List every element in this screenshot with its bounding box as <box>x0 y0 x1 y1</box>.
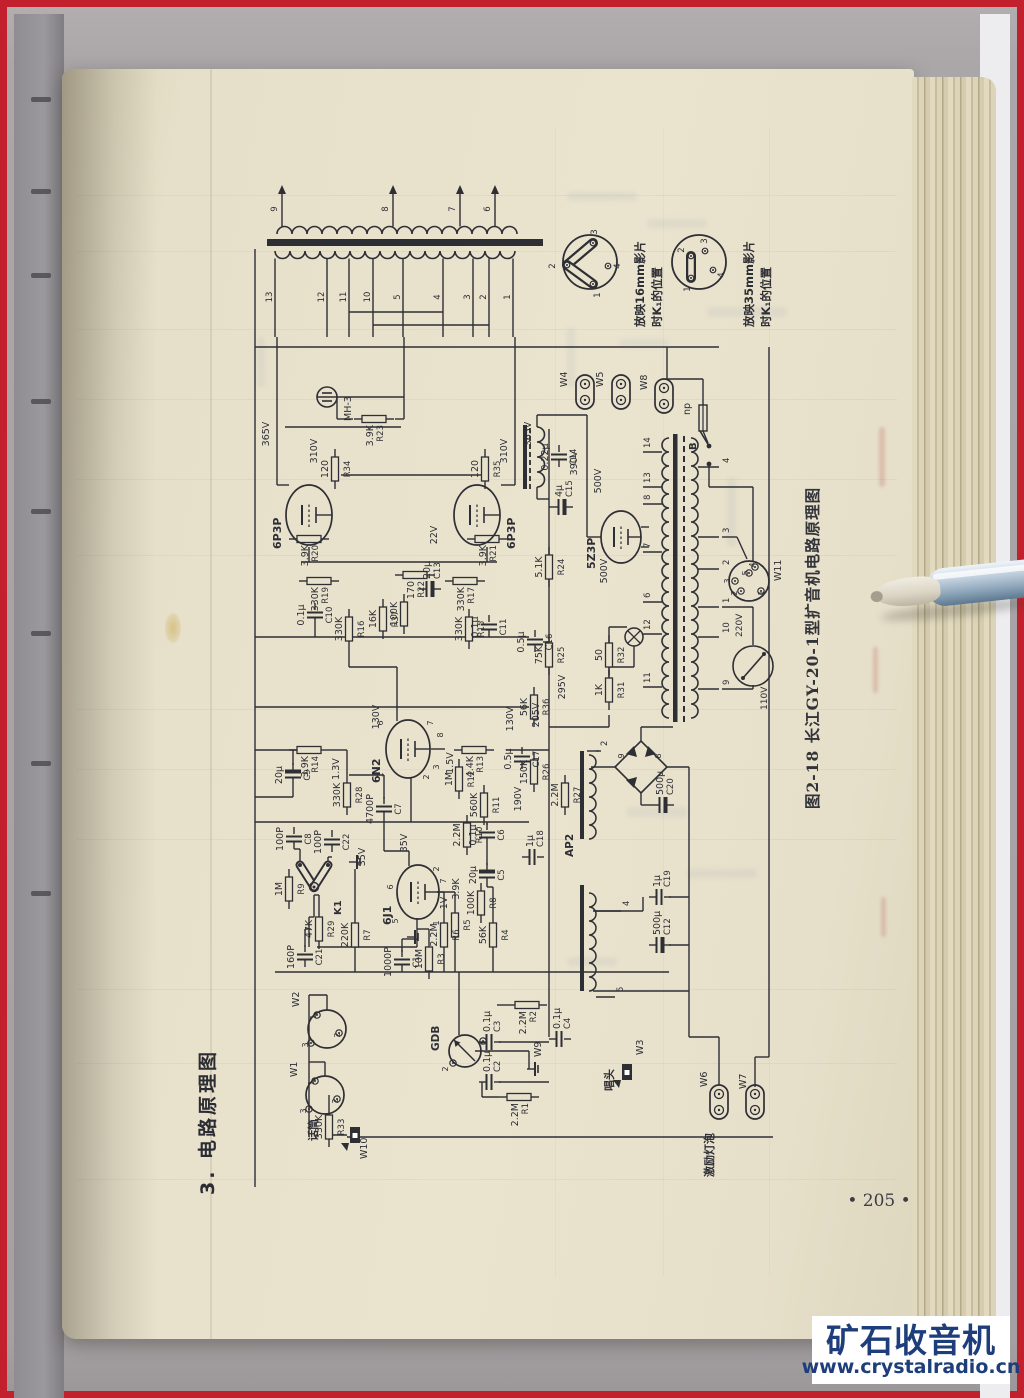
power-transformer: 141387612114321109 <box>643 434 732 722</box>
svg-text:2: 2 <box>600 741 610 746</box>
svg-text:2: 2 <box>422 774 431 779</box>
terminal-oval <box>710 1085 728 1119</box>
svg-text:GDB: GDB <box>430 1026 442 1051</box>
svg-text:2.2M: 2.2M <box>429 923 440 946</box>
svg-text:13: 13 <box>265 292 275 303</box>
svg-text:3.9K: 3.9K <box>365 424 376 446</box>
svg-text:3.9K: 3.9K <box>478 544 489 566</box>
svg-text:7: 7 <box>439 878 448 883</box>
svg-text:4: 4 <box>748 562 757 567</box>
svg-text:2.2M: 2.2M <box>550 783 561 806</box>
svg-text:1: 1 <box>757 590 766 595</box>
svg-text:R7: R7 <box>363 929 373 940</box>
resistor-R32: 50R32 <box>594 635 627 675</box>
capacitor-C21: 160PC21 <box>286 945 325 969</box>
page-edge-mark <box>31 97 51 102</box>
svg-text:3: 3 <box>301 1042 310 1047</box>
svg-text:2.2M: 2.2M <box>518 1011 529 1034</box>
svg-text:7: 7 <box>426 720 435 725</box>
svg-text:5: 5 <box>741 570 750 575</box>
svg-text:R13: R13 <box>476 756 486 773</box>
svg-text:6N2: 6N2 <box>370 758 383 783</box>
tube-6J1: 6J1 <box>381 865 439 925</box>
resistor-R28: 330KR28 <box>332 775 365 815</box>
capacitor-C15: 4μC15 <box>551 480 575 515</box>
svg-text:W10: W10 <box>359 1138 370 1159</box>
svg-text:R34: R34 <box>343 461 353 478</box>
svg-text:7: 7 <box>448 206 458 211</box>
svg-text:C19: C19 <box>663 870 673 887</box>
svg-text:3: 3 <box>722 528 732 533</box>
watermark-url: www.crystalradio.cn <box>802 1358 1021 1377</box>
svg-text:6: 6 <box>386 884 395 889</box>
svg-text:R32: R32 <box>617 647 627 664</box>
svg-text:120: 120 <box>470 460 481 478</box>
svg-text:2: 2 <box>441 1066 450 1071</box>
svg-text:W7: W7 <box>738 1074 749 1089</box>
svg-text:190V: 190V <box>513 786 524 811</box>
svg-text:330K: 330K <box>454 616 465 641</box>
k1-position-diagram: 3214放映16mm影片时K₁的位置 <box>548 229 664 328</box>
capacitor-C11: 0.1μC11 <box>470 615 509 638</box>
svg-text:500V: 500V <box>599 558 610 583</box>
svg-text:8: 8 <box>643 495 653 500</box>
svg-text:0.1μ: 0.1μ <box>482 1051 493 1072</box>
svg-text:7: 7 <box>643 543 653 548</box>
autotransformer-AP2: 245 <box>580 741 632 997</box>
svg-text:20μ: 20μ <box>274 766 285 784</box>
svg-text:0.22μ: 0.22μ <box>540 443 551 470</box>
svg-text:0.1μ: 0.1μ <box>468 824 479 845</box>
section-heading: 3. 电路原理图 <box>193 1035 220 1195</box>
svg-text:W4: W4 <box>559 372 570 387</box>
watermark: 矿石收音机 www.crystalradio.cn <box>812 1316 1010 1384</box>
svg-text:4700P: 4700P <box>365 794 376 824</box>
svg-text:220K: 220K <box>340 922 351 947</box>
svg-text:R1: R1 <box>521 1103 531 1114</box>
page-edge-mark <box>31 189 51 194</box>
svg-text:B: B <box>688 442 699 450</box>
svg-text:12: 12 <box>643 619 653 630</box>
svg-text:330K: 330K <box>332 782 343 807</box>
svg-text:390V: 390V <box>569 450 580 475</box>
photo-red-frame: 2.2MR12.2MR210MR356KR4R52.2MR6220KR7100K… <box>0 0 1024 1398</box>
svg-text:4: 4 <box>622 901 632 906</box>
svg-text:R9: R9 <box>297 883 307 894</box>
voltage-selector <box>733 646 773 686</box>
svg-text:0.1μ: 0.1μ <box>296 604 307 625</box>
svg-text:0.5μ: 0.5μ <box>516 631 527 652</box>
terminal-oval <box>576 375 594 409</box>
svg-text:1: 1 <box>593 292 603 297</box>
svg-text:5: 5 <box>393 294 403 299</box>
svg-text:R21: R21 <box>489 545 499 562</box>
resistor-R16: 330KR16 <box>334 609 367 649</box>
page-edge-mark <box>31 399 51 404</box>
resistor-R11: 560KR11 <box>469 785 502 825</box>
gdb-arrow <box>454 1040 475 1061</box>
svg-text:56K: 56K <box>478 925 489 944</box>
svg-text:R11: R11 <box>492 797 502 814</box>
fore-edge-mark <box>879 427 885 487</box>
svg-text:3.9K: 3.9K <box>300 544 311 566</box>
svg-text:C15: C15 <box>565 480 575 497</box>
svg-text:C11: C11 <box>499 619 509 636</box>
svg-text:4: 4 <box>722 458 732 463</box>
svg-text:9: 9 <box>722 680 732 685</box>
svg-text:1: 1 <box>432 920 441 925</box>
capacitor-C6: 0.1μC6 <box>468 823 507 846</box>
svg-text:0.5μ: 0.5μ <box>503 748 514 769</box>
svg-text:C1: C1 <box>412 956 422 967</box>
svg-text:R16: R16 <box>357 621 367 638</box>
svg-text:1: 1 <box>480 1040 489 1045</box>
book-gutter-shadow <box>62 69 157 1339</box>
resistor-R17: 330KR17 <box>445 578 485 612</box>
page-edge-stack <box>912 77 996 1339</box>
svg-text:2.2M: 2.2M <box>510 1103 521 1126</box>
svg-text:W11: W11 <box>773 560 784 581</box>
svg-text:56K: 56K <box>519 697 530 716</box>
indicator-lamp <box>625 628 643 646</box>
svg-text:330K: 330K <box>456 586 467 611</box>
svg-text:C7: C7 <box>394 803 404 814</box>
k1-position-diagram: 2314放映35mm影片时K₁的位置 <box>672 235 773 328</box>
capacitor-C17: 0.5μC17 <box>503 747 542 770</box>
svg-text:13: 13 <box>643 472 653 483</box>
svg-text:35V: 35V <box>357 847 368 866</box>
svg-text:C4: C4 <box>563 1018 573 1029</box>
svg-text:6P3P: 6P3P <box>505 518 518 549</box>
svg-text:R6: R6 <box>452 929 462 940</box>
svg-text:11: 11 <box>643 672 653 683</box>
svg-text:W2: W2 <box>291 992 302 1007</box>
page-edge-mark <box>31 509 51 514</box>
terminal-oval <box>655 379 673 413</box>
svg-text:2: 2 <box>333 1032 342 1037</box>
svg-text:1: 1 <box>307 1080 316 1085</box>
resistor-R4: 56KR4 <box>478 915 511 955</box>
svg-text:295V: 295V <box>557 674 568 699</box>
svg-text:150K: 150K <box>519 759 530 784</box>
svg-text:2: 2 <box>730 590 739 595</box>
svg-text:3.9K: 3.9K <box>451 878 462 900</box>
svg-text:5Z3P: 5Z3P <box>585 538 598 569</box>
svg-text:16K: 16K <box>368 609 379 628</box>
capacitor-C19: 1μC19 <box>649 870 673 905</box>
svg-text:365V: 365V <box>261 421 272 446</box>
svg-text:3: 3 <box>590 229 600 234</box>
svg-text:11: 11 <box>339 292 349 303</box>
svg-text:话筒: 话筒 <box>306 1119 320 1141</box>
svg-text:W3: W3 <box>635 1040 646 1055</box>
svg-text:MH-3: MH-3 <box>343 396 354 421</box>
svg-text:W5: W5 <box>595 372 606 387</box>
terminal-oval <box>746 1085 764 1119</box>
svg-text:C21: C21 <box>315 949 325 966</box>
svg-text:50: 50 <box>594 649 605 661</box>
fore-edge-mark <box>881 897 886 937</box>
svg-text:1K: 1K <box>594 683 605 696</box>
svg-text:160P: 160P <box>286 945 297 969</box>
svg-text:C3: C3 <box>493 1021 503 1032</box>
svg-text:1: 1 <box>683 286 693 291</box>
svg-text:3: 3 <box>700 238 710 243</box>
svg-text:205V: 205V <box>531 702 542 727</box>
resistor-R2: 2.2MR2 <box>507 1002 547 1035</box>
svg-text:W8: W8 <box>639 375 650 390</box>
svg-text:R37: R37 <box>391 611 401 628</box>
svg-text:C6: C6 <box>497 829 507 840</box>
svg-text:2: 2 <box>432 866 441 871</box>
svg-text:C17: C17 <box>532 751 542 768</box>
svg-text:14: 14 <box>643 437 653 448</box>
svg-text:激励灯泡: 激励灯泡 <box>702 1133 716 1177</box>
capacitor-C16: 0.5μC16 <box>516 630 555 653</box>
svg-text:1.5V: 1.5V <box>445 752 456 774</box>
svg-text:1: 1 <box>376 772 385 777</box>
svg-text:放映35mm影片: 放映35mm影片 <box>742 241 756 328</box>
svg-text:C18: C18 <box>536 830 546 847</box>
svg-text:130V: 130V <box>371 704 382 729</box>
svg-text:R2: R2 <box>529 1011 539 1022</box>
svg-text:1V: 1V <box>439 896 450 909</box>
svg-text:R23: R23 <box>376 425 386 442</box>
circuit-schematic: 2.2MR12.2MR210MR356KR4R52.2MR6220KR7100K… <box>197 177 842 1187</box>
figure-caption: 图2-18 长江GY-20-1型扩音机电路原理图 <box>801 409 823 809</box>
capacitor-C10: 0.1μC10 <box>296 603 335 626</box>
svg-text:10: 10 <box>722 622 732 633</box>
svg-text:6: 6 <box>643 593 653 598</box>
svg-text:R8: R8 <box>489 897 499 908</box>
svg-text:np: np <box>682 403 693 415</box>
svg-text:5: 5 <box>391 918 400 923</box>
svg-text:1M: 1M <box>444 772 455 786</box>
schematic-rotated-layer: 2.2MR12.2MR210MR356KR4R52.2MR6220KR7100K… <box>197 177 842 1187</box>
svg-text:12: 12 <box>317 292 327 303</box>
svg-text:唱头: 唱头 <box>602 1069 616 1091</box>
paper-stain <box>165 613 181 643</box>
svg-text:1μ: 1μ <box>652 875 663 887</box>
fore-edge-mark <box>873 647 878 693</box>
connector-pin <box>732 578 738 584</box>
resistor-R31: 1KR31 <box>594 670 627 710</box>
capacitor-C5: 20μC5 <box>468 863 507 885</box>
svg-text:4.4K: 4.4K <box>465 755 476 777</box>
svg-text:4: 4 <box>613 263 623 268</box>
svg-text:R24: R24 <box>557 559 567 576</box>
capacitor-C8: 100PC8 <box>275 827 314 851</box>
watermark-title: 矿石收音机 <box>826 1324 996 1357</box>
svg-text:8: 8 <box>381 206 391 211</box>
svg-text:C22: C22 <box>342 834 352 851</box>
svg-text:100P: 100P <box>313 830 324 854</box>
svg-text:4μ: 4μ <box>554 485 565 497</box>
pen-tip <box>873 574 942 609</box>
svg-text:5: 5 <box>616 987 626 992</box>
svg-text:9: 9 <box>270 206 280 211</box>
resistor-R1: 2.2MR1 <box>499 1094 539 1127</box>
svg-text:560K: 560K <box>469 792 480 817</box>
svg-text:500μ: 500μ <box>652 911 663 935</box>
svg-text:1: 1 <box>503 294 513 299</box>
svg-text:9: 9 <box>617 753 626 758</box>
svg-text:R5: R5 <box>463 919 473 930</box>
photo-background-left <box>14 14 64 1398</box>
svg-text:C10: C10 <box>325 607 335 624</box>
svg-text:8: 8 <box>654 753 663 758</box>
svg-text:500V: 500V <box>593 468 604 493</box>
resistor-R34: 120R34 <box>320 449 353 489</box>
svg-text:R29: R29 <box>327 921 337 938</box>
capacitor-C20: 500μC20 <box>652 771 676 813</box>
svg-text:10: 10 <box>363 292 373 303</box>
fuse-np <box>699 405 707 431</box>
svg-text:1μ: 1μ <box>525 835 536 847</box>
svg-text:R4: R4 <box>501 929 511 940</box>
svg-text:35V: 35V <box>399 833 410 852</box>
svg-text:W1: W1 <box>289 1062 300 1077</box>
svg-text:110V: 110V <box>760 686 770 710</box>
svg-text:0.1μ: 0.1μ <box>482 1011 493 1032</box>
svg-text:时K₁的位置: 时K₁的位置 <box>650 267 664 327</box>
resistor-R7: 220KR7 <box>340 915 373 955</box>
svg-text:R26: R26 <box>542 764 552 781</box>
svg-text:放映16mm影片: 放映16mm影片 <box>633 241 647 328</box>
svg-text:1.3V: 1.3V <box>331 758 342 780</box>
svg-text:8: 8 <box>436 732 445 737</box>
svg-text:6: 6 <box>483 206 493 211</box>
svg-text:3: 3 <box>299 1108 308 1113</box>
svg-text:R25: R25 <box>557 647 567 664</box>
capacitor-C18: 1μC18 <box>522 830 546 865</box>
resistor-R8: 100KR8 <box>466 883 499 923</box>
svg-text:R3: R3 <box>437 953 447 964</box>
svg-text:R33: R33 <box>337 1119 347 1136</box>
svg-text:1M: 1M <box>274 882 285 896</box>
svg-text:100P: 100P <box>275 827 286 851</box>
svg-text:4: 4 <box>717 272 727 277</box>
svg-text:2: 2 <box>331 1098 340 1103</box>
svg-text:2: 2 <box>722 560 732 565</box>
resistor-R27: 2.2MR27 <box>550 775 583 815</box>
svg-text:170: 170 <box>406 581 417 599</box>
svg-text:3: 3 <box>723 578 732 583</box>
page-edge-mark <box>31 631 51 636</box>
svg-text:310V: 310V <box>309 438 320 463</box>
svg-text:C2: C2 <box>493 1061 503 1072</box>
svg-text:47K: 47K <box>304 919 315 938</box>
svg-text:C13: C13 <box>433 562 443 579</box>
svg-text:C16: C16 <box>545 634 555 651</box>
svg-text:AP2: AP2 <box>564 834 576 857</box>
resistor-R23: 3.9KR23 <box>354 416 394 447</box>
svg-text:6: 6 <box>376 720 385 725</box>
svg-text:3: 3 <box>432 764 441 769</box>
svg-text:0.1μ: 0.1μ <box>552 1008 563 1029</box>
svg-text:2.2M: 2.2M <box>452 823 463 846</box>
capacitor-C22: 100PC22 <box>313 830 352 854</box>
svg-text:R28: R28 <box>355 787 365 804</box>
svg-text:C20: C20 <box>666 778 676 795</box>
pen <box>865 542 1024 647</box>
svg-text:R36: R36 <box>542 699 552 716</box>
svg-text:C9: C9 <box>303 769 313 780</box>
svg-text:R31: R31 <box>617 682 627 699</box>
svg-text:22V: 22V <box>429 525 440 544</box>
svg-text:310V: 310V <box>499 438 510 463</box>
svg-text:4: 4 <box>433 294 443 299</box>
svg-text:6P3P: 6P3P <box>271 518 284 549</box>
svg-text:1: 1 <box>309 1014 318 1019</box>
page-edge-mark <box>31 273 51 278</box>
svg-text:0.1μ: 0.1μ <box>470 616 481 637</box>
capacitor-C12: 500μC12 <box>649 911 673 953</box>
svg-text:20μ: 20μ <box>468 866 479 884</box>
svg-text:5.1K: 5.1K <box>534 556 545 578</box>
terminal-oval <box>612 375 630 409</box>
svg-text:R20: R20 <box>311 545 321 562</box>
svg-text:330K: 330K <box>334 616 345 641</box>
svg-text:时K₁的位置: 时K₁的位置 <box>759 267 773 327</box>
resistor-R24: 5.1KR24 <box>534 547 567 587</box>
svg-text:365V: 365V <box>523 421 534 446</box>
capacitor-C4: 0.1μC4 <box>549 1008 573 1047</box>
svg-text:130V: 130V <box>505 706 516 731</box>
svg-text:W9: W9 <box>533 1042 544 1057</box>
svg-text:2: 2 <box>677 247 687 252</box>
svg-text:R19: R19 <box>321 587 331 604</box>
svg-text:W6: W6 <box>699 1072 710 1087</box>
svg-text:2: 2 <box>479 294 489 299</box>
page-edge-mark <box>31 761 51 766</box>
svg-text:220V: 220V <box>735 613 745 637</box>
svg-text:C5: C5 <box>497 869 507 880</box>
svg-text:R17: R17 <box>467 587 477 604</box>
svg-text:3: 3 <box>463 294 473 299</box>
tube-5Z3P: 5Z3P <box>585 511 641 569</box>
svg-text:1000P: 1000P <box>383 947 394 977</box>
svg-text:2: 2 <box>548 263 558 268</box>
page-number: • 205 • <box>819 1191 939 1211</box>
output-transformer: 13121110543219876 <box>265 185 543 337</box>
svg-text:100K: 100K <box>466 890 477 915</box>
svg-text:C12: C12 <box>663 918 673 935</box>
svg-text:120: 120 <box>320 460 331 478</box>
svg-text:1: 1 <box>722 598 732 603</box>
page-edge-mark <box>31 891 51 896</box>
svg-text:K1: K1 <box>333 900 344 915</box>
svg-text:20μ: 20μ <box>422 561 433 579</box>
